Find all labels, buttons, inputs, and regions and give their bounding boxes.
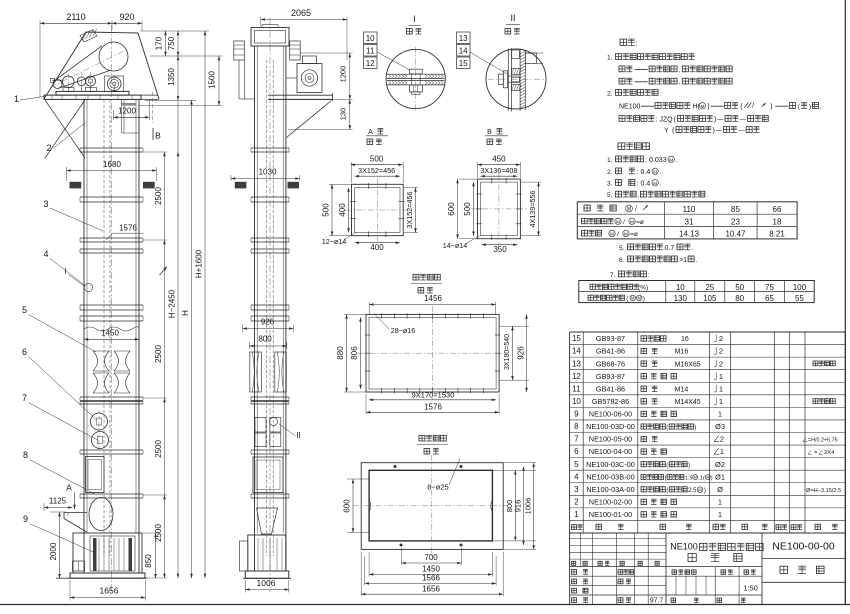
svg-text:10: 10 <box>366 34 375 43</box>
svg-text:): ) <box>713 127 715 134</box>
svg-text:2065: 2065 <box>291 8 311 18</box>
svg-text:GB68-76: GB68-76 <box>596 359 625 368</box>
svg-text:—: — <box>740 116 747 123</box>
svg-text:H: H <box>181 310 190 316</box>
svg-text:350: 350 <box>493 245 507 254</box>
svg-text:M16: M16 <box>675 349 689 356</box>
svg-text:500: 500 <box>322 203 331 217</box>
svg-text:100: 100 <box>793 283 807 292</box>
svg-text:(: ( <box>665 475 667 481</box>
svg-text:2500: 2500 <box>154 440 163 458</box>
svg-text:926: 926 <box>517 346 526 360</box>
svg-text:920: 920 <box>119 12 134 22</box>
svg-text:>1: >1 <box>679 257 687 264</box>
svg-text:=H/0.2+5.75: =H/0.2+5.75 <box>808 438 838 444</box>
svg-text:110: 110 <box>683 205 696 214</box>
svg-text:1680: 1680 <box>103 160 121 169</box>
svg-text:2500: 2500 <box>154 187 163 205</box>
svg-text:: 0.033: : 0.033 <box>645 157 667 164</box>
svg-text:8: 8 <box>574 422 579 431</box>
svg-text:926: 926 <box>261 318 275 327</box>
svg-text:9X170=1530: 9X170=1530 <box>412 391 455 400</box>
svg-text:/: / <box>623 219 625 226</box>
svg-text::: : <box>660 90 662 97</box>
svg-text:(: ( <box>666 463 668 469</box>
svg-text:9: 9 <box>574 410 579 419</box>
svg-text:H+1600: H+1600 <box>195 249 204 278</box>
svg-text:750: 750 <box>167 36 176 50</box>
svg-text:450: 450 <box>492 155 506 164</box>
svg-text:1125: 1125 <box>49 497 67 506</box>
svg-text:500: 500 <box>370 155 384 164</box>
svg-text:M: M <box>653 181 657 187</box>
svg-text:1350: 1350 <box>167 68 176 86</box>
svg-text:M: M <box>624 231 628 237</box>
svg-text:1656: 1656 <box>422 584 440 593</box>
svg-text:1656: 1656 <box>100 586 119 596</box>
svg-text:1450: 1450 <box>101 329 119 338</box>
svg-text:NE100-06-00: NE100-06-00 <box>589 410 632 419</box>
svg-text:Ø=H−3.15/2.5: Ø=H−3.15/2.5 <box>806 488 841 494</box>
svg-text:B: B <box>155 131 161 141</box>
svg-text:1: 1 <box>719 384 723 393</box>
svg-text:): ) <box>707 103 709 110</box>
svg-text:14.13: 14.13 <box>679 229 700 238</box>
svg-text:): ) <box>688 463 690 469</box>
svg-text:NE100-00-00: NE100-00-00 <box>772 541 835 553</box>
svg-text:4: 4 <box>43 249 48 259</box>
svg-text:NE100-04-00: NE100-04-00 <box>589 447 632 456</box>
svg-text:Ø: Ø <box>717 485 723 494</box>
svg-text:800: 800 <box>258 335 272 344</box>
svg-text:NE100: NE100 <box>670 542 698 552</box>
svg-text:: JZQ: : JZQ <box>656 116 674 123</box>
svg-text:2000: 2000 <box>49 542 58 560</box>
svg-text:): ) <box>694 425 696 431</box>
svg-text:14: 14 <box>572 347 581 356</box>
svg-text:): ) <box>704 488 706 494</box>
svg-text:,1(: ,1( <box>698 475 705 481</box>
svg-text:NE100-05-00: NE100-05-00 <box>589 435 632 444</box>
svg-text:14: 14 <box>459 47 468 56</box>
svg-text:15: 15 <box>459 59 468 68</box>
svg-text:(: ( <box>666 425 668 431</box>
svg-text:5.: 5. <box>619 245 625 252</box>
svg-text:: 0.4: : 0.4 <box>637 180 651 187</box>
svg-text:2: 2 <box>46 143 51 153</box>
svg-text:1576: 1576 <box>424 403 442 412</box>
svg-text:6: 6 <box>22 347 27 357</box>
svg-text:1: 1 <box>14 94 19 104</box>
svg-text:11: 11 <box>572 384 581 393</box>
svg-text:65: 65 <box>765 294 774 303</box>
svg-text:NE100-02-00: NE100-02-00 <box>589 497 632 506</box>
svg-text:M14X45: M14X45 <box>675 399 701 406</box>
svg-text:—: — <box>717 116 724 123</box>
svg-text:M: M <box>610 231 614 237</box>
svg-text:.: . <box>660 180 662 187</box>
svg-text:16: 16 <box>681 336 689 343</box>
svg-text:=ø: =ø <box>636 219 644 226</box>
svg-text:13: 13 <box>572 359 581 368</box>
svg-text:1456: 1456 <box>424 294 442 303</box>
svg-text:4X139=556: 4X139=556 <box>528 191 537 228</box>
svg-text:GB41-86: GB41-86 <box>596 384 625 393</box>
svg-text:A: A <box>66 483 72 493</box>
svg-text:400: 400 <box>338 203 347 217</box>
svg-text:3.: 3. <box>607 180 613 187</box>
svg-text:/: / <box>617 231 619 238</box>
svg-text:1: 1 <box>718 497 722 506</box>
svg-text:3: 3 <box>43 199 48 209</box>
svg-text:1: 1 <box>719 372 723 381</box>
svg-text:3: 3 <box>574 485 579 494</box>
svg-text:.: . <box>676 157 678 164</box>
svg-text:): ) <box>714 116 716 123</box>
svg-text:2: 2 <box>720 435 724 444</box>
svg-text:M16X65: M16X65 <box>675 361 701 368</box>
svg-text:66: 66 <box>773 205 782 214</box>
svg-text:130: 130 <box>339 108 348 121</box>
svg-text:1030: 1030 <box>259 168 277 177</box>
svg-text:1: 1 <box>719 397 723 406</box>
svg-text:M: M <box>698 487 702 492</box>
svg-text:M14: M14 <box>675 386 689 393</box>
svg-text::: : <box>636 41 638 48</box>
svg-text:A: A <box>368 129 373 136</box>
svg-text:1450: 1450 <box>422 565 440 574</box>
svg-text:2.: 2. <box>607 90 613 97</box>
svg-text:31: 31 <box>685 217 694 226</box>
svg-text:M: M <box>630 219 634 225</box>
svg-text:2500: 2500 <box>154 345 163 363</box>
svg-text:): ) <box>770 103 772 110</box>
svg-text:Ø3: Ø3 <box>715 422 725 431</box>
svg-text:1: 1 <box>574 510 579 519</box>
svg-text::: : <box>706 192 708 199</box>
svg-text:M: M <box>669 157 673 163</box>
svg-text::: : <box>648 145 650 152</box>
svg-text:1566: 1566 <box>422 574 440 583</box>
svg-text:GB5782-86: GB5782-86 <box>592 397 629 406</box>
svg-text:II: II <box>296 431 300 440</box>
svg-text:M: M <box>706 476 709 480</box>
svg-text:2: 2 <box>719 334 723 343</box>
svg-text:M: M <box>701 104 705 110</box>
svg-text:55: 55 <box>795 294 804 303</box>
svg-text:1:50: 1:50 <box>743 584 758 593</box>
svg-text:12−ø14: 12−ø14 <box>322 237 347 246</box>
svg-text:3X152=456: 3X152=456 <box>358 166 395 175</box>
svg-text:1200: 1200 <box>118 107 136 116</box>
svg-text:/: / <box>752 103 754 110</box>
svg-text:85: 85 <box>731 205 740 214</box>
svg-text:,: , <box>637 192 639 199</box>
svg-text:8: 8 <box>23 450 28 460</box>
svg-text:600: 600 <box>447 202 456 216</box>
svg-text:600: 600 <box>343 499 352 513</box>
svg-text:2: 2 <box>719 347 723 356</box>
svg-text:6: 6 <box>574 447 579 456</box>
svg-text:M: M <box>637 296 641 301</box>
svg-text:700: 700 <box>424 553 438 562</box>
svg-text:2.: 2. <box>607 169 613 176</box>
svg-text:8.21: 8.21 <box>769 229 785 238</box>
svg-text:75: 75 <box>765 283 774 292</box>
svg-text:II: II <box>510 13 515 23</box>
svg-text:I: I <box>413 14 416 24</box>
svg-text:1500: 1500 <box>208 71 217 89</box>
svg-text:3X180=540: 3X180=540 <box>504 334 511 370</box>
svg-text:2: 2 <box>574 497 579 506</box>
svg-text:5: 5 <box>574 460 579 469</box>
svg-text:.: . <box>660 169 662 176</box>
svg-text:M: M <box>653 169 657 175</box>
svg-text:1.5: 1.5 <box>685 475 693 481</box>
svg-text:.: . <box>695 257 697 264</box>
svg-text:1: 1 <box>718 510 722 519</box>
svg-text:12: 12 <box>572 372 581 381</box>
svg-text:1006: 1006 <box>257 578 276 588</box>
svg-text:13: 13 <box>459 34 468 43</box>
svg-text:GB41-86: GB41-86 <box>596 347 625 356</box>
svg-text:NE100-03C-00: NE100-03C-00 <box>586 460 635 469</box>
svg-text:1: 1 <box>720 447 724 456</box>
svg-text:: 0.4: : 0.4 <box>637 169 651 176</box>
svg-text:97.7: 97.7 <box>650 598 664 605</box>
svg-text:M: M <box>631 296 635 301</box>
svg-text:NE100-01-00: NE100-01-00 <box>589 510 632 519</box>
svg-text:10.47: 10.47 <box>725 229 746 238</box>
svg-text:7: 7 <box>574 435 579 444</box>
svg-text:(%): (%) <box>638 284 648 291</box>
svg-text:Ø2: Ø2 <box>715 460 725 469</box>
svg-text:M: M <box>694 476 697 480</box>
svg-text:11: 11 <box>366 47 375 56</box>
svg-text:7.: 7. <box>610 272 616 279</box>
svg-text:): ) <box>643 295 645 302</box>
svg-text:.: . <box>820 103 822 110</box>
svg-text::: : <box>648 272 650 279</box>
svg-text:25: 25 <box>705 283 714 292</box>
svg-text:H−2450: H−2450 <box>168 289 177 318</box>
svg-text:500: 500 <box>463 202 472 216</box>
svg-text:/: / <box>635 206 637 213</box>
svg-text:5.: 5. <box>607 192 613 199</box>
svg-text:B: B <box>487 129 492 136</box>
svg-text:1576: 1576 <box>119 224 137 233</box>
svg-text:Ø1: Ø1 <box>715 472 725 481</box>
svg-text:NE100-03B-00: NE100-03B-00 <box>586 472 634 481</box>
svg-text:.: . <box>692 245 694 252</box>
svg-text:2X4: 2X4 <box>824 450 835 456</box>
svg-text:880: 880 <box>336 346 345 360</box>
svg-text:1: 1 <box>718 410 722 419</box>
svg-text:2: 2 <box>719 359 723 368</box>
svg-text:170: 170 <box>155 36 164 50</box>
svg-text:1.: 1. <box>607 55 613 62</box>
svg-text:18: 18 <box>773 217 782 226</box>
svg-text:916: 916 <box>513 500 522 513</box>
svg-text:0.7: 0.7 <box>665 245 675 252</box>
svg-text:105: 105 <box>703 294 717 303</box>
svg-text:3X136=408: 3X136=408 <box>480 166 517 175</box>
svg-text:NE100: NE100 <box>619 103 641 110</box>
svg-text:8−ø25: 8−ø25 <box>427 483 448 492</box>
svg-text:15: 15 <box>572 334 581 343</box>
svg-text:—: — <box>738 127 745 134</box>
svg-text:(: ( <box>666 488 668 494</box>
svg-text:14−ø14: 14−ø14 <box>443 241 468 250</box>
svg-text:80: 80 <box>735 294 744 303</box>
svg-text:1200: 1200 <box>339 66 348 83</box>
svg-text:7: 7 <box>22 393 27 403</box>
svg-text:1.: 1. <box>607 157 613 164</box>
svg-text:400: 400 <box>370 243 384 252</box>
svg-text:—: — <box>716 127 723 134</box>
svg-text:28−ø16: 28−ø16 <box>391 326 416 335</box>
svg-text:3X152=456: 3X152=456 <box>405 192 414 229</box>
svg-text:10: 10 <box>676 283 685 292</box>
svg-text:850: 850 <box>144 554 153 568</box>
svg-text:=ø: =ø <box>630 231 638 238</box>
svg-text:1006: 1006 <box>523 498 532 515</box>
svg-text:5: 5 <box>22 305 27 315</box>
svg-text:10: 10 <box>572 397 581 406</box>
svg-text:4: 4 <box>574 472 579 481</box>
svg-text:Y: Y <box>664 127 669 134</box>
svg-text:806: 806 <box>350 346 359 360</box>
svg-text:M: M <box>616 219 620 225</box>
svg-text:GB93-87: GB93-87 <box>596 334 625 343</box>
svg-text:NE100-03D-00: NE100-03D-00 <box>586 422 635 431</box>
svg-text:): ) <box>711 475 713 481</box>
svg-text:50: 50 <box>735 283 744 292</box>
svg-text:12: 12 <box>366 59 375 68</box>
svg-text:NE100-03A-00: NE100-03A-00 <box>586 485 634 494</box>
svg-text:I: I <box>64 267 66 276</box>
svg-text:23: 23 <box>731 217 740 226</box>
svg-text:M: M <box>627 207 631 213</box>
svg-text:GB93-87: GB93-87 <box>596 372 625 381</box>
svg-text:130: 130 <box>674 294 688 303</box>
svg-text:9: 9 <box>23 514 28 524</box>
svg-text:2110: 2110 <box>66 12 85 22</box>
svg-text:): ) <box>809 103 811 110</box>
svg-text:6.: 6. <box>619 257 625 264</box>
svg-text:2.5: 2.5 <box>688 488 697 494</box>
